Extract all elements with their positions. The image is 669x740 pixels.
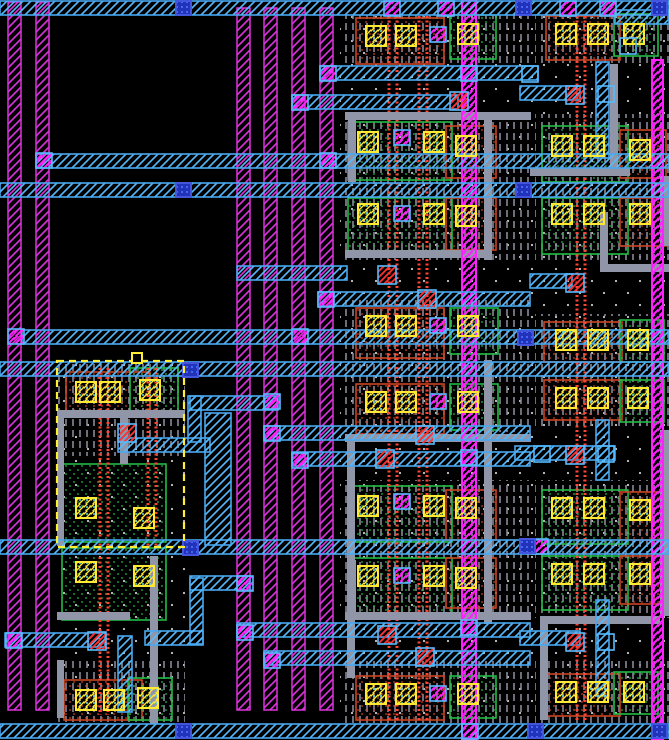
power-rail-metal1[interactable]: [292, 8, 305, 710]
metal-route-gray[interactable]: [57, 660, 64, 718]
power-rail-metal1[interactable]: [8, 2, 21, 710]
contact[interactable]: [458, 684, 478, 704]
contact[interactable]: [556, 24, 576, 44]
contact[interactable]: [588, 330, 608, 350]
via-metal1-metal2[interactable]: [461, 620, 477, 635]
contact[interactable]: [556, 682, 576, 702]
contact[interactable]: [588, 24, 608, 44]
layout-viewport[interactable]: [0, 0, 669, 740]
contact[interactable]: [456, 568, 476, 588]
via-metal1-metal2[interactable]: [461, 66, 477, 81]
metal2-band[interactable]: [36, 154, 669, 168]
contact[interactable]: [584, 564, 604, 584]
substrate-contact[interactable]: [566, 446, 584, 464]
contact[interactable]: [76, 562, 96, 582]
contact[interactable]: [630, 204, 650, 224]
via-port[interactable]: [528, 724, 543, 738]
substrate-contact[interactable]: [418, 290, 436, 308]
via-metal1-metal2[interactable]: [394, 130, 410, 145]
metal-route-gray[interactable]: [57, 410, 185, 418]
substrate-contact[interactable]: [450, 92, 468, 110]
contact[interactable]: [556, 330, 576, 350]
contact[interactable]: [104, 690, 124, 710]
via-port[interactable]: [652, 724, 667, 738]
metal2-segment[interactable]: [292, 452, 530, 466]
via-port[interactable]: [176, 1, 191, 15]
contact[interactable]: [76, 498, 96, 518]
selection-handle[interactable]: [132, 353, 142, 363]
via-port[interactable]: [176, 183, 191, 197]
contact[interactable]: [366, 392, 386, 412]
contact[interactable]: [584, 498, 604, 518]
contact[interactable]: [456, 206, 476, 226]
contact[interactable]: [358, 204, 378, 224]
via-metal1-metal2[interactable]: [264, 394, 280, 409]
contact[interactable]: [76, 382, 96, 402]
via-port[interactable]: [183, 541, 198, 555]
contact[interactable]: [628, 330, 648, 350]
via-metal1-metal2[interactable]: [264, 426, 280, 441]
contact[interactable]: [396, 392, 416, 412]
contact[interactable]: [456, 498, 476, 518]
via-metal1-metal2[interactable]: [8, 329, 24, 344]
contact[interactable]: [588, 682, 608, 702]
metal2-segment[interactable]: [320, 66, 538, 80]
contact[interactable]: [358, 132, 378, 152]
substrate-contact[interactable]: [118, 424, 136, 442]
via-metal1-metal2[interactable]: [292, 453, 308, 468]
contact[interactable]: [396, 684, 416, 704]
via-port[interactable]: [518, 331, 533, 345]
via-metal1-metal2[interactable]: [560, 1, 576, 16]
substrate-contact[interactable]: [416, 426, 434, 444]
contact[interactable]: [624, 682, 644, 702]
contact[interactable]: [456, 136, 476, 156]
via-metal1-metal2[interactable]: [384, 1, 400, 16]
metal2-segment[interactable]: [264, 426, 530, 440]
contact[interactable]: [424, 566, 444, 586]
metal2-band[interactable]: [0, 724, 669, 738]
via-port[interactable]: [516, 183, 531, 197]
contact[interactable]: [358, 566, 378, 586]
via-metal1-metal2[interactable]: [394, 494, 410, 509]
substrate-contact[interactable]: [378, 266, 396, 284]
contact[interactable]: [552, 498, 572, 518]
contact[interactable]: [358, 496, 378, 516]
via-metal1-metal2[interactable]: [320, 153, 336, 168]
contact[interactable]: [424, 496, 444, 516]
metal2-segment-vertical[interactable]: [205, 413, 231, 545]
metal-route-gray[interactable]: [348, 120, 356, 182]
contact[interactable]: [396, 26, 416, 46]
power-rail-metal1[interactable]: [264, 8, 277, 710]
via-metal1-metal2[interactable]: [430, 394, 446, 409]
contact[interactable]: [424, 132, 444, 152]
via-metal1-metal2[interactable]: [600, 1, 616, 16]
via-metal1-metal2[interactable]: [438, 1, 454, 16]
contact[interactable]: [134, 508, 154, 528]
via-port[interactable]: [516, 1, 531, 15]
contact[interactable]: [584, 136, 604, 156]
via-metal1-metal2[interactable]: [6, 633, 22, 648]
via-metal1-metal2[interactable]: [430, 27, 446, 42]
contact[interactable]: [366, 684, 386, 704]
substrate-contact[interactable]: [88, 632, 106, 650]
contact[interactable]: [458, 24, 478, 44]
via-port[interactable]: [652, 1, 667, 15]
via-metal1-metal2[interactable]: [318, 292, 334, 307]
contact[interactable]: [628, 388, 648, 408]
metal-route-gray[interactable]: [347, 438, 355, 678]
substrate-contact[interactable]: [416, 648, 434, 666]
metal2-segment[interactable]: [292, 95, 458, 109]
via-metal1-metal2[interactable]: [320, 66, 336, 81]
metal2-segment-vertical[interactable]: [190, 578, 203, 644]
contact[interactable]: [584, 204, 604, 224]
substrate-contact[interactable]: [566, 274, 584, 292]
contact[interactable]: [138, 688, 158, 708]
contact[interactable]: [134, 566, 154, 586]
via-metal1-metal2[interactable]: [430, 686, 446, 701]
contact[interactable]: [630, 500, 650, 520]
substrate-contact[interactable]: [566, 633, 584, 651]
metal2-band[interactable]: [0, 362, 669, 376]
metal2-segment-vertical[interactable]: [188, 396, 201, 442]
substrate-contact[interactable]: [376, 450, 394, 468]
contact[interactable]: [624, 24, 644, 44]
substrate-contact[interactable]: [566, 86, 584, 104]
contact[interactable]: [552, 564, 572, 584]
contact[interactable]: [458, 316, 478, 336]
metal2-segment[interactable]: [237, 266, 347, 280]
contact[interactable]: [630, 564, 650, 584]
contact[interactable]: [366, 316, 386, 336]
contact[interactable]: [556, 388, 576, 408]
contact[interactable]: [396, 316, 416, 336]
via-metal1-metal2[interactable]: [430, 318, 446, 333]
metal-route-gray[interactable]: [345, 112, 531, 120]
via-metal1-metal2[interactable]: [292, 95, 308, 110]
layout-canvas[interactable]: [0, 0, 669, 740]
via-metal1-metal2[interactable]: [394, 568, 410, 583]
via-metal1-metal2[interactable]: [237, 576, 253, 591]
via-port[interactable]: [183, 363, 198, 377]
via-port[interactable]: [176, 724, 191, 738]
contact[interactable]: [552, 136, 572, 156]
contact[interactable]: [140, 380, 160, 400]
metal-route-gray[interactable]: [345, 612, 531, 620]
power-rail-metal1[interactable]: [320, 8, 333, 710]
power-rail-metal1[interactable]: [237, 8, 250, 710]
via-metal1-metal2[interactable]: [264, 653, 280, 668]
via-metal1-metal2[interactable]: [237, 625, 253, 640]
via-port[interactable]: [520, 539, 535, 553]
contact[interactable]: [424, 204, 444, 224]
via-metal1-metal2[interactable]: [461, 450, 477, 465]
via-metal1-metal2[interactable]: [462, 724, 478, 739]
contact[interactable]: [552, 204, 572, 224]
via-metal1-metal2[interactable]: [292, 329, 308, 344]
contact[interactable]: [366, 26, 386, 46]
contact[interactable]: [100, 382, 120, 402]
via-metal1-metal2[interactable]: [394, 206, 410, 221]
substrate-contact[interactable]: [378, 626, 396, 644]
contact[interactable]: [630, 140, 650, 160]
contact[interactable]: [76, 690, 96, 710]
metal-route-gray[interactable]: [484, 360, 492, 624]
metal2-band[interactable]: [0, 183, 669, 197]
via-metal1-metal2[interactable]: [36, 153, 52, 168]
power-rail-metal1[interactable]: [36, 2, 49, 710]
metal2-segment[interactable]: [264, 651, 530, 665]
contact[interactable]: [588, 388, 608, 408]
metal-route-gray[interactable]: [57, 612, 130, 620]
contact[interactable]: [458, 392, 478, 412]
